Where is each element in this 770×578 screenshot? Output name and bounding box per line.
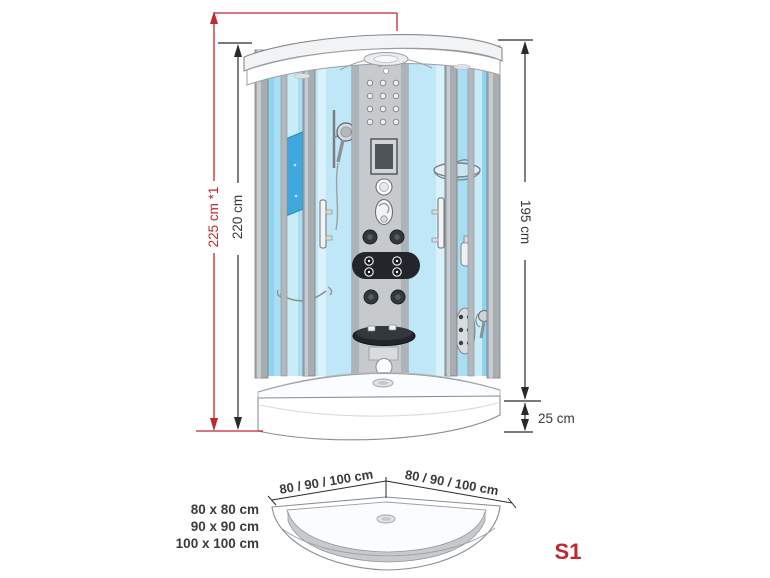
- rain-shower-face: [374, 56, 398, 63]
- side-jet: [459, 341, 463, 345]
- back-massage-pad: [352, 252, 420, 279]
- mixer-base: [381, 216, 387, 222]
- mullion-left: [281, 62, 287, 376]
- tray-size-option: 100 x 100 cm: [176, 536, 259, 551]
- tray-skirt: [258, 396, 500, 440]
- arrow-down-icon: [521, 387, 529, 400]
- post-right-outer-highlight: [489, 46, 493, 378]
- cabin-front-view: [244, 35, 502, 440]
- dim-label-cabin-height: 220 cm: [230, 195, 245, 239]
- tray-size-option: 90 x 90 cm: [191, 519, 259, 534]
- diagram-svg: 225 cm *1 220 cm 195 cm 25 cm: [0, 0, 770, 578]
- post-left-outer: [255, 50, 268, 378]
- arrow-down-icon: [521, 419, 529, 431]
- shower-cabin-diagram: 225 cm *1 220 cm 195 cm 25 cm: [0, 0, 770, 578]
- arrow-up-icon: [521, 403, 529, 415]
- handle-mount: [326, 236, 332, 240]
- side-jet: [459, 315, 463, 319]
- tray-front-view: [258, 372, 500, 439]
- massage-jet-center: [368, 294, 374, 300]
- hand-shower-face: [341, 127, 351, 137]
- dim-tick-left: [268, 496, 276, 505]
- tray-dim-label-left: 80 / 90 / 100 cm: [278, 466, 374, 496]
- dim-label-tray-height: 25 cm: [538, 411, 575, 426]
- arrow-down-icon: [210, 418, 218, 431]
- seat-screw: [294, 164, 297, 167]
- roof-vent-right: [454, 65, 470, 70]
- massage-jet-center: [367, 234, 373, 240]
- model-label: S1: [555, 539, 582, 564]
- column-shade-left: [352, 58, 359, 376]
- dim-glass-height: 195 cm: [498, 40, 541, 401]
- post-left-mid-highlight: [305, 56, 308, 376]
- shelf-clip: [368, 326, 375, 331]
- tray-size-option: 80 x 80 cm: [191, 502, 259, 517]
- side-jet: [459, 328, 463, 332]
- post-right-mid: [445, 56, 457, 376]
- seat-screw: [295, 195, 298, 198]
- dim-label-glass-height: 195 cm: [518, 200, 533, 244]
- tray-size-list: 80 x 80 cm 90 x 90 cm 100 x 100 cm: [176, 502, 259, 551]
- mullion-right: [468, 62, 474, 376]
- arrow-up-icon: [234, 44, 242, 57]
- door-handle-left: [320, 200, 326, 248]
- arrow-up-icon: [521, 41, 529, 54]
- arrow-down-icon: [234, 417, 242, 430]
- shelf-clip: [389, 325, 396, 330]
- drain-center: [381, 517, 391, 521]
- dim-label-total-height: 225 cm *1: [206, 187, 221, 248]
- glass-left-edge: [268, 64, 274, 376]
- ceiling-light: [384, 69, 389, 74]
- foot-shelf-top: [356, 326, 412, 340]
- diverter-knob-center: [380, 183, 389, 192]
- glass-left-highlight: [286, 64, 298, 376]
- handle-mount: [326, 210, 332, 214]
- handle-mount: [432, 238, 438, 242]
- tray-dim-label-right: 80 / 90 / 100 cm: [404, 467, 500, 498]
- drain-center: [378, 381, 389, 385]
- handle-mount: [432, 210, 438, 214]
- post-right-mid-highlight: [447, 56, 450, 376]
- massage-jet-center: [394, 234, 400, 240]
- post-left-mid: [303, 56, 315, 376]
- roof-vent-left: [294, 74, 310, 79]
- door-handle-right: [438, 198, 444, 248]
- control-panel-display: [375, 144, 393, 169]
- dim-tray-height: 25 cm: [504, 403, 575, 432]
- dim-cabin-height: 220 cm: [218, 43, 252, 430]
- tray-plan-view: 80 / 90 / 100 cm 80 / 90 / 100 cm 80 x 8…: [176, 466, 582, 570]
- massage-jet-center: [395, 294, 401, 300]
- post-right-outer: [487, 46, 500, 378]
- post-left-outer-highlight: [257, 50, 261, 378]
